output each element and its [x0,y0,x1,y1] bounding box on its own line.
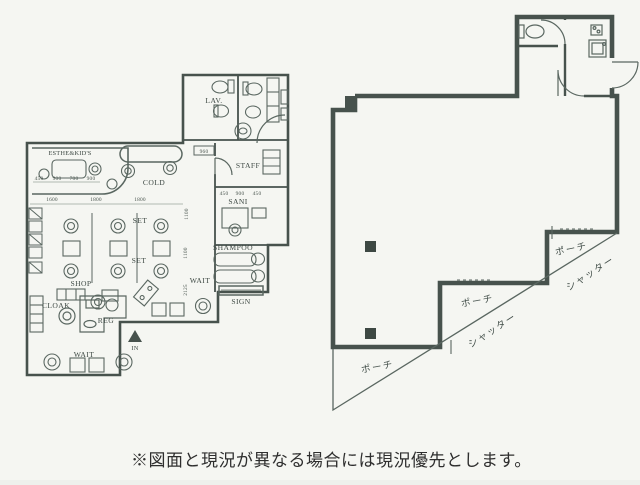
kitchenette-fixture [589,25,606,57]
pillar-upper [365,241,376,252]
sign-board [219,286,263,295]
porch-middle-label: ポーチ [460,293,494,310]
dim-v-1: 1100 [184,208,190,219]
toilet-fixture [519,25,544,38]
shampoo-label: SHAMPOO [213,243,253,252]
dim-bay-2: 1800 [90,197,102,203]
sani-furniture [222,208,266,236]
dim-v-3: 2125 [183,284,189,296]
cold-counter [120,146,182,162]
scanned-floorplan-page: ESTHE&KID'S 450 900 700 900 1600 1800 18… [0,0,640,480]
shop-label: SHOP [70,279,91,288]
dim-bay-3: 1800 [134,197,146,203]
porch-lower-label: ポーチ [360,359,394,376]
wall-shelving [29,208,42,273]
dim-sani-3: 450 [253,191,262,197]
esthe-kids-label: ESTHE&KID'S [48,150,91,157]
right-floorplan: ポーチ ポーチ ポーチ シャッター シャッター [333,17,638,410]
dim-v-2: 1100 [183,247,189,258]
sani-label: SANI [228,197,247,206]
shutter-lower-label: シャッター [467,311,519,350]
dim-esthe-1: 450 [35,176,44,182]
styling-stations [63,219,170,278]
floorplan-canvas: ESTHE&KID'S 450 900 700 900 1600 1800 18… [0,0,640,480]
entrance-arrow-icon [128,330,142,342]
sign-label: SIGN [231,297,250,306]
dim-bay-1: 1600 [46,197,58,203]
lav-fixtures [212,78,288,122]
staff-furniture [263,150,280,174]
lav-label: LAV. [205,96,222,105]
porch-upper-label: ポーチ [554,241,589,259]
set-upper-label: SET [133,216,148,225]
wall-ticks [451,226,552,354]
corridor-door-arc-right [558,70,584,96]
entrance-label: IN [131,345,138,352]
left-floorplan: ESTHE&KID'S 450 900 700 900 1600 1800 18… [27,75,288,375]
dim-sani-1: 450 [220,191,229,197]
pillar-lower [365,328,376,339]
disclaimer-note: ※図面と現況が異なる場合には現況優先とします。 [131,446,532,471]
cold-label: COLD [143,178,165,187]
staff-label: STAFF [236,161,260,170]
exterior-door-arc [612,62,638,88]
shutter-line [333,233,617,410]
styling-trolley [134,280,159,306]
reg-label: REG [98,316,115,325]
dim-esthe-3: 700 [70,176,79,182]
dashed-openings [457,229,596,280]
dim-esthe-2: 900 [53,176,62,182]
shampoo-units [214,253,265,283]
left-plan-partitions [183,75,288,292]
set-lower-label: SET [132,256,147,265]
toilet-door-arc [541,20,565,44]
cold-chairs [107,162,177,190]
wait-right-label: WAIT [190,276,211,285]
staff-door-arc [215,158,232,175]
dim-staff-width: 960 [200,149,209,155]
dim-esthe-4: 900 [87,176,96,182]
wait-right-seats [152,299,211,317]
wall-step-fill [345,96,357,110]
